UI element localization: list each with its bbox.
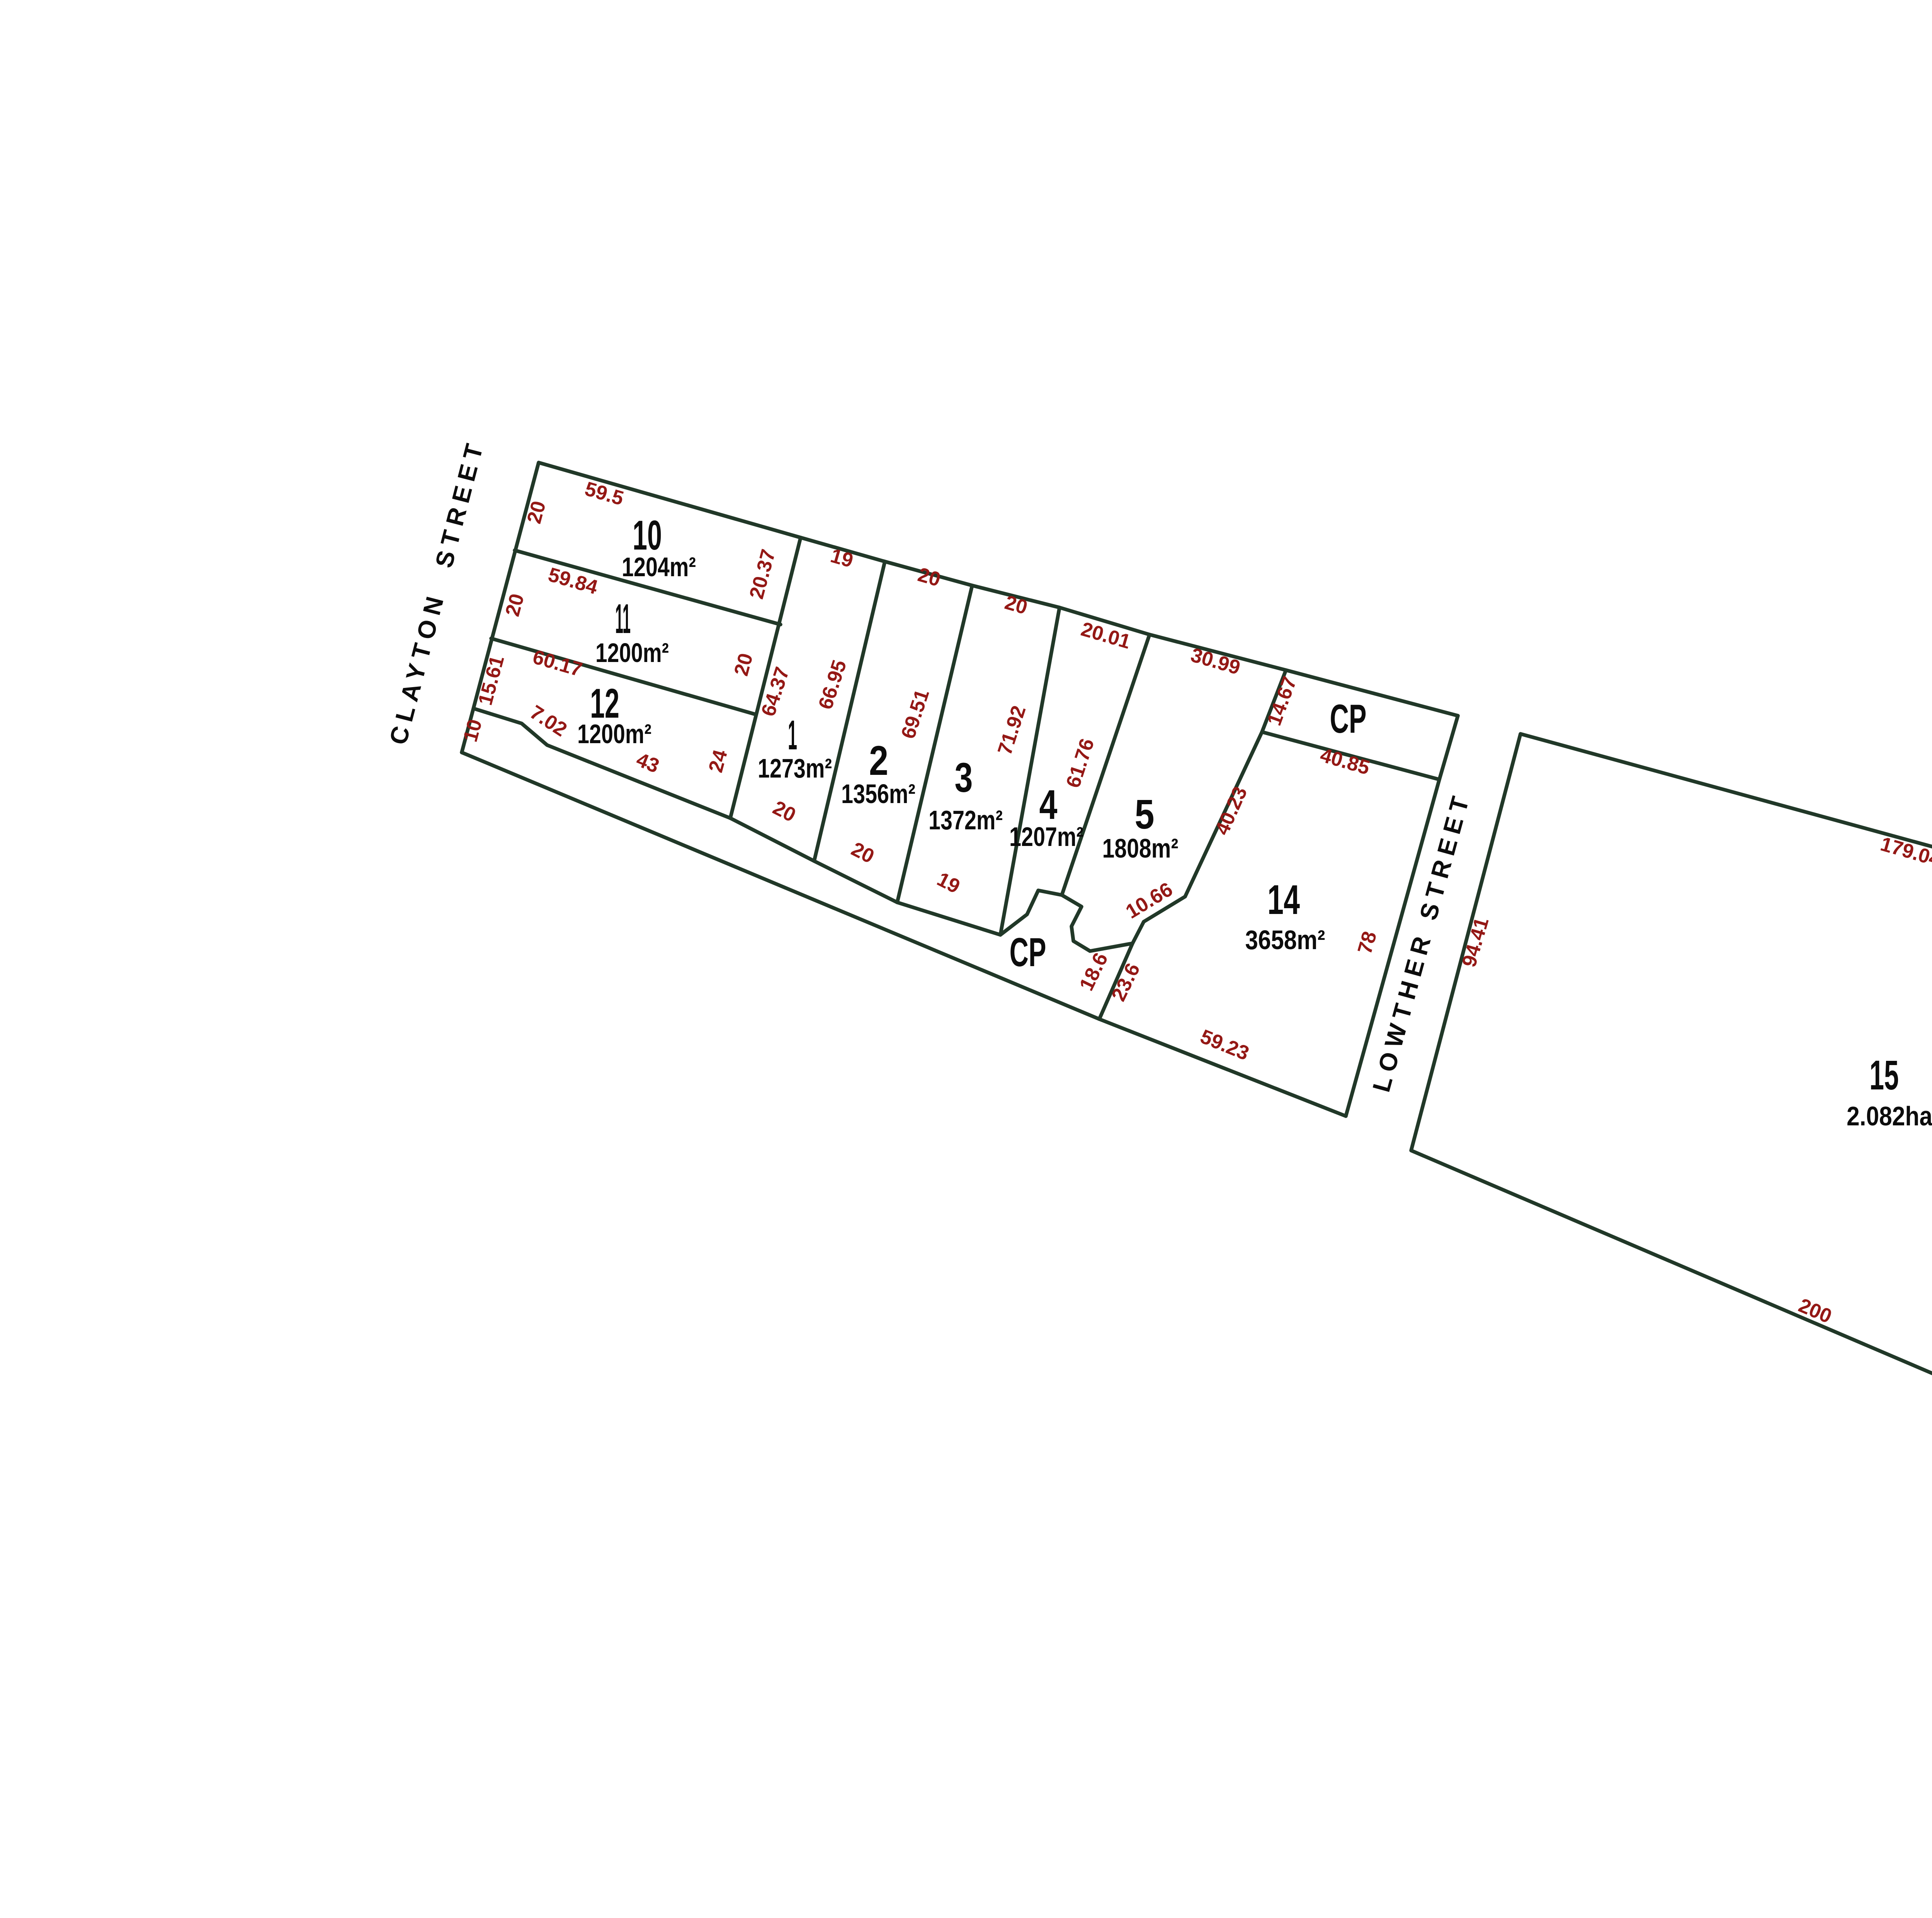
svg-text:11: 11	[615, 595, 631, 642]
svg-text:LOWTHER STREET: LOWTHER STREET	[1367, 788, 1476, 1095]
svg-text:2: 2	[869, 737, 888, 784]
svg-text:20: 20	[730, 651, 757, 678]
svg-text:20: 20	[769, 796, 799, 827]
svg-text:18.6: 18.6	[1075, 949, 1112, 994]
svg-text:1356m²: 1356m²	[841, 779, 915, 809]
svg-text:1200m²: 1200m²	[595, 638, 669, 668]
svg-text:4: 4	[1039, 781, 1058, 828]
svg-text:1: 1	[788, 711, 797, 758]
svg-text:94.41: 94.41	[1458, 915, 1493, 970]
svg-text:59.5: 59.5	[582, 478, 626, 510]
svg-text:14: 14	[1267, 876, 1300, 923]
svg-text:179.04: 179.04	[1878, 833, 1932, 871]
svg-text:78: 78	[1354, 929, 1381, 957]
svg-text:1273m²: 1273m²	[758, 753, 832, 783]
svg-text:200: 200	[1795, 1294, 1835, 1328]
svg-text:1207m²: 1207m²	[1009, 822, 1083, 852]
svg-text:1204m²: 1204m²	[622, 552, 696, 582]
svg-text:59.84: 59.84	[546, 563, 600, 599]
svg-text:30.99: 30.99	[1188, 644, 1243, 679]
svg-text:60.17: 60.17	[530, 646, 585, 681]
svg-text:69.51: 69.51	[897, 687, 934, 742]
svg-text:1808m²: 1808m²	[1102, 833, 1179, 863]
svg-text:20: 20	[501, 591, 529, 619]
svg-text:3658m²: 3658m²	[1245, 925, 1325, 955]
svg-text:71.92: 71.92	[993, 703, 1030, 758]
svg-text:43: 43	[633, 749, 662, 778]
svg-text:20.37: 20.37	[745, 547, 780, 601]
svg-text:1372m²: 1372m²	[929, 805, 1003, 835]
svg-text:20: 20	[848, 838, 878, 868]
svg-text:24: 24	[704, 747, 732, 775]
svg-text:10: 10	[633, 512, 662, 558]
svg-text:66.95: 66.95	[814, 657, 851, 712]
svg-text:15: 15	[1869, 1052, 1899, 1098]
svg-text:40.85: 40.85	[1318, 744, 1372, 779]
svg-text:3: 3	[955, 754, 973, 801]
svg-text:5: 5	[1135, 791, 1155, 837]
svg-text:1200m²: 1200m²	[577, 719, 651, 749]
svg-text:40.23: 40.23	[1211, 783, 1252, 838]
svg-text:CP: CP	[1330, 696, 1367, 742]
svg-text:2.082ha: 2.082ha	[1847, 1101, 1932, 1131]
svg-text:19: 19	[934, 868, 964, 898]
svg-text:CP: CP	[1010, 930, 1046, 975]
svg-text:23.6: 23.6	[1107, 960, 1145, 1004]
svg-text:19: 19	[828, 545, 856, 572]
svg-text:20: 20	[915, 563, 943, 591]
svg-text:61.76: 61.76	[1062, 736, 1099, 791]
svg-text:14.67: 14.67	[1263, 674, 1301, 728]
